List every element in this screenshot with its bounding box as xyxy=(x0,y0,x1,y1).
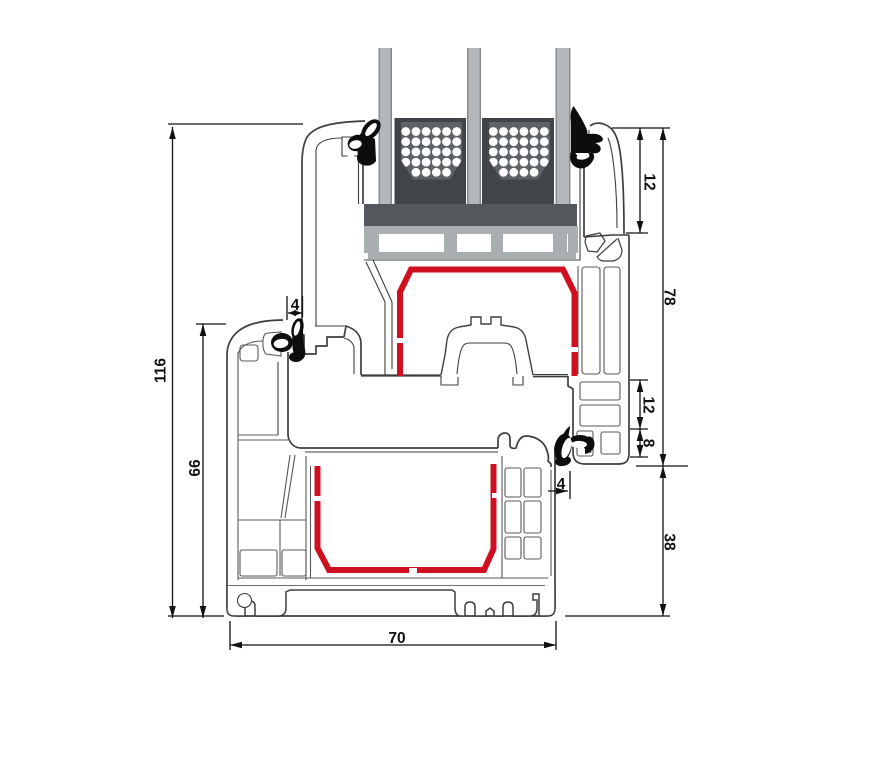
svg-text:78: 78 xyxy=(661,288,678,306)
svg-text:38: 38 xyxy=(661,533,678,551)
svg-text:4: 4 xyxy=(291,297,300,314)
svg-text:4: 4 xyxy=(557,476,566,493)
svg-text:66: 66 xyxy=(187,459,204,477)
svg-text:8: 8 xyxy=(640,439,657,448)
svg-text:116: 116 xyxy=(153,358,170,383)
svg-text:12: 12 xyxy=(640,396,657,413)
svg-text:70: 70 xyxy=(388,630,405,647)
svg-text:12: 12 xyxy=(641,173,658,190)
